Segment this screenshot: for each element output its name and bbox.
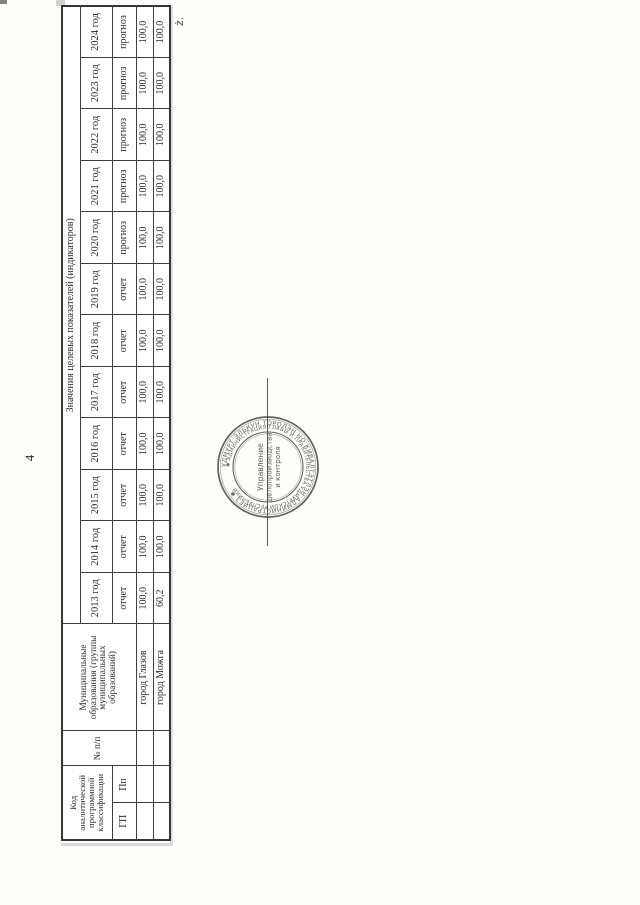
- year-header: 2015 год: [80, 470, 112, 522]
- value-cell: 100,0: [136, 573, 153, 625]
- value-cell: 100,0: [153, 470, 170, 522]
- stamp-center-line-1: Управление: [256, 443, 265, 491]
- value-type-header: отчет: [112, 418, 136, 470]
- municipality-header: Муниципальные образования (группы муници…: [62, 624, 136, 731]
- year-header: 2013 год: [80, 573, 112, 625]
- value-cell: 100,0: [136, 109, 153, 161]
- code-gp-cell: [136, 803, 153, 840]
- page-number: 4: [22, 449, 40, 467]
- scanned-document-page: 4 ż. Код аналитической программной класс…: [0, 0, 640, 905]
- municipality-cell: город Можга: [153, 624, 170, 731]
- value-cell: 100,0: [153, 418, 170, 470]
- code-pp-header: Пп: [112, 766, 136, 803]
- stamp-graphic: УДМУРТ ЭЛЬКУН ТОРОЛЭН НО КИВАЛТЭТЛЭН АДМ…: [216, 415, 320, 519]
- value-cell: 100,0: [153, 212, 170, 264]
- value-cell: 100,0: [153, 367, 170, 419]
- value-cell: 100,0: [136, 161, 153, 213]
- value-cell: 100,0: [153, 264, 170, 316]
- stamp-center-line-3: и контроля: [274, 446, 282, 487]
- margin-mark: ż.: [173, 8, 191, 26]
- row-number-cell: [136, 731, 153, 766]
- year-header: 2018 год: [80, 315, 112, 367]
- code-gp-cell: [153, 803, 170, 840]
- value-type-header: отчет: [112, 367, 136, 419]
- year-header: 2024 год: [80, 6, 112, 58]
- value-type-header: отчет: [112, 264, 136, 316]
- value-cell: 100,0: [136, 264, 153, 316]
- value-cell: 100,0: [153, 521, 170, 573]
- year-header: 2017 год: [80, 367, 112, 419]
- value-type-header: прогноз: [112, 58, 136, 110]
- value-cell: 100,0: [153, 109, 170, 161]
- value-cell: 100,0: [136, 315, 153, 367]
- year-header: 2023 год: [80, 58, 112, 110]
- municipality-cell: город Глазов: [136, 624, 153, 731]
- value-cell: 60,2: [153, 573, 170, 625]
- year-header: 2022 год: [80, 109, 112, 161]
- row-number-cell: [153, 731, 170, 766]
- value-cell: 100,0: [136, 521, 153, 573]
- scan-artifact: [61, 843, 173, 846]
- row-number-header: № п/п: [62, 731, 136, 766]
- year-header: 2020 год: [80, 212, 112, 264]
- value-cell: 100,0: [136, 58, 153, 110]
- year-header: 2021 год: [80, 161, 112, 213]
- values-group-header: Значения целевых показателей (индикаторо…: [62, 6, 80, 624]
- value-type-header: отчет: [112, 315, 136, 367]
- year-header: 2019 год: [80, 264, 112, 316]
- value-type-header: прогноз: [112, 109, 136, 161]
- value-cell: 100,0: [136, 6, 153, 58]
- value-cell: 100,0: [153, 161, 170, 213]
- year-header: 2016 год: [80, 418, 112, 470]
- indicators-table: Код аналитической программной классифика…: [61, 5, 171, 841]
- value-cell: 100,0: [136, 470, 153, 522]
- value-cell: 100,0: [136, 418, 153, 470]
- official-round-stamp: УДМУРТ ЭЛЬКУН ТОРОЛЭН НО КИВАЛТЭТЛЭН АДМ…: [216, 415, 320, 519]
- table-row: город Можга 60,2 100,0 100,0 100,0 100,0…: [153, 6, 170, 840]
- value-cell: 100,0: [153, 58, 170, 110]
- value-type-header: отчет: [112, 521, 136, 573]
- value-type-header: отчет: [112, 573, 136, 625]
- year-header: 2014 год: [80, 521, 112, 573]
- value-type-header: отчет: [112, 470, 136, 522]
- value-cell: 100,0: [153, 6, 170, 58]
- value-type-header: прогноз: [112, 212, 136, 264]
- value-type-header: прогноз: [112, 161, 136, 213]
- value-cell: 100,0: [136, 367, 153, 419]
- table-row: город Глазов 100,0 100,0 100,0 100,0 100…: [136, 6, 153, 840]
- scan-artifact: [0, 0, 7, 4]
- value-cell: 100,0: [136, 212, 153, 264]
- code-classification-header: Код аналитической программной классифика…: [62, 766, 112, 840]
- stamp-center-line-2: делопроизводства: [266, 432, 274, 501]
- value-type-header: прогноз: [112, 6, 136, 58]
- value-cell: 100,0: [153, 315, 170, 367]
- code-pp-cell: [153, 766, 170, 803]
- code-pp-cell: [136, 766, 153, 803]
- indicators-table-rotated: Код аналитической программной классифика…: [61, 5, 169, 841]
- code-gp-header: ГП: [112, 803, 136, 840]
